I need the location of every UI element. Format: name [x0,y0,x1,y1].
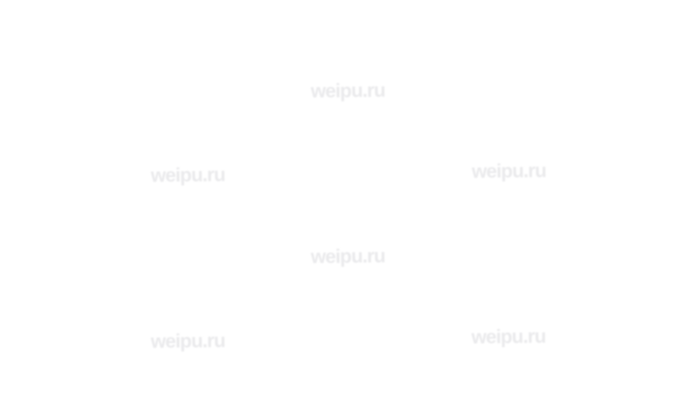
svg-text:weipu.ru: weipu.ru [470,326,545,349]
svg-text:weipu.ru: weipu.ru [150,330,225,353]
svg-text:weipu.ru: weipu.ru [310,245,385,268]
svg-text:weipu.ru: weipu.ru [310,80,385,103]
svg-text:weipu.ru: weipu.ru [471,160,546,183]
svg-text:weipu.ru: weipu.ru [150,164,225,187]
